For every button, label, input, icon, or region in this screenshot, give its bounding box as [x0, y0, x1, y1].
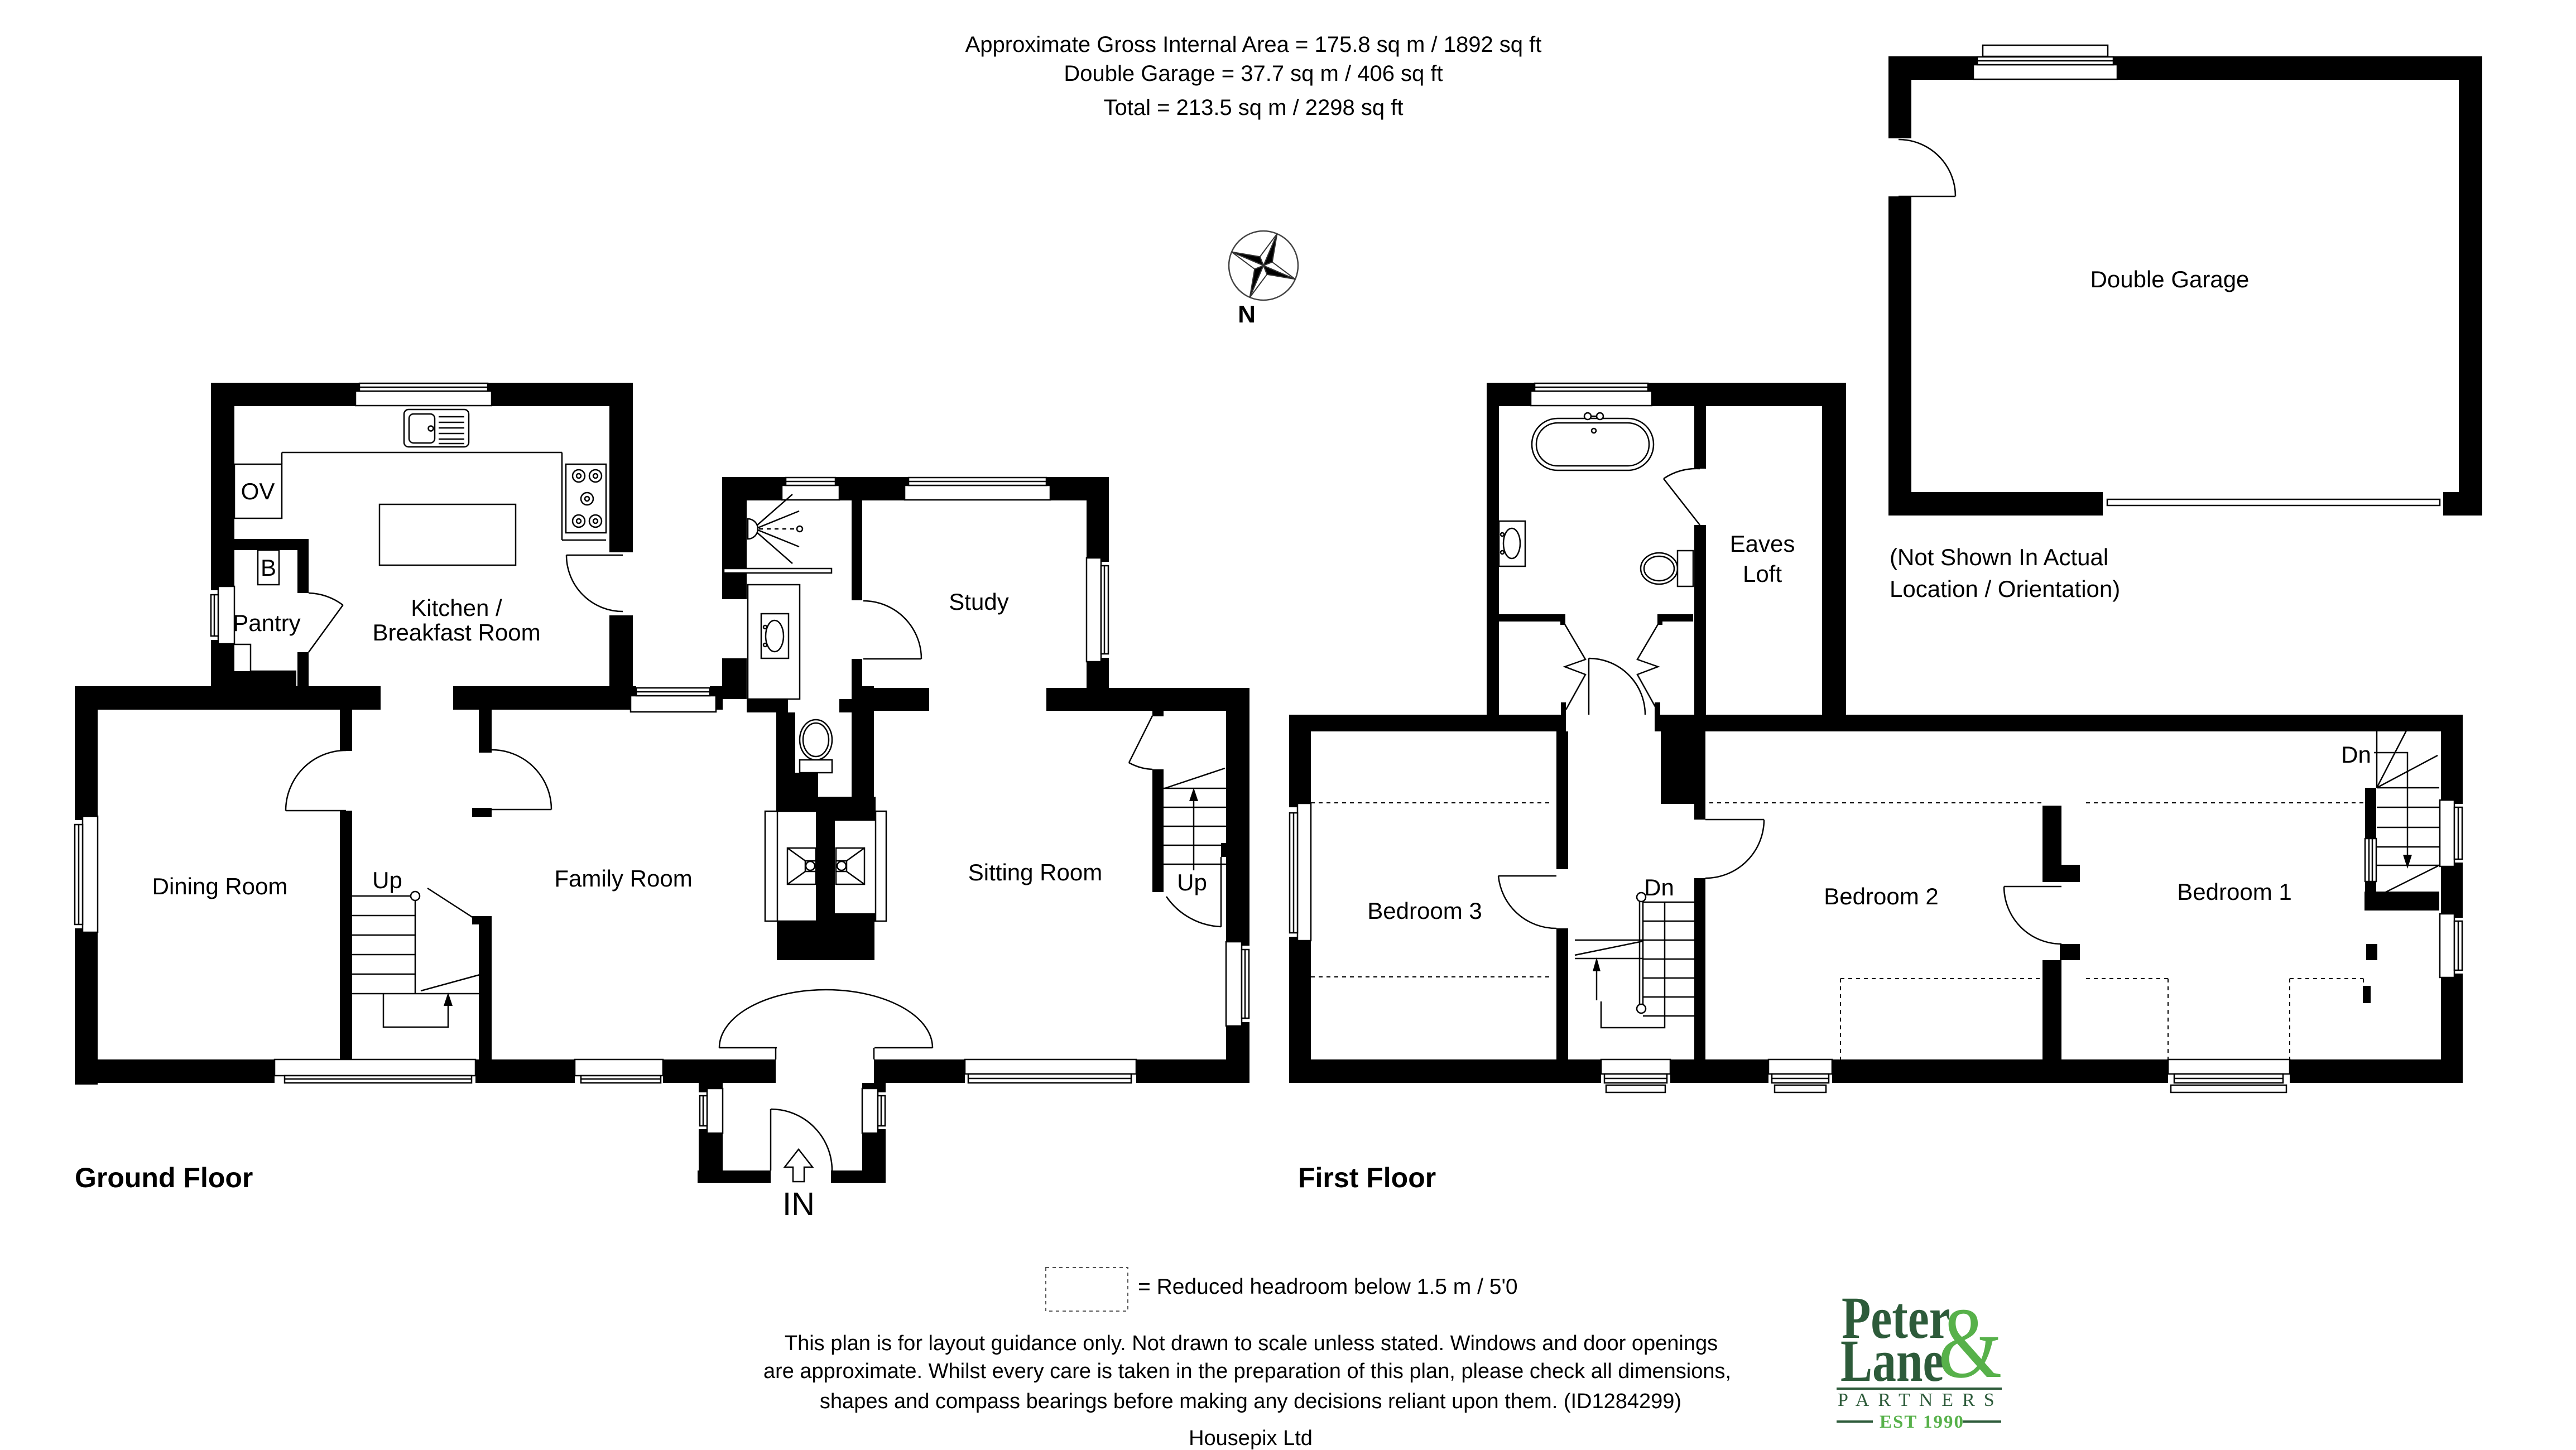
- svg-text:Dn: Dn: [1644, 874, 1674, 900]
- svg-text:This plan is for layout guidan: This plan is for layout guidance only. N…: [785, 1332, 1718, 1355]
- svg-text:Dining Room: Dining Room: [152, 873, 288, 899]
- svg-text:N: N: [1238, 301, 1256, 328]
- svg-text:PARTNERS: PARTNERS: [1838, 1390, 2003, 1410]
- svg-text:EST 1990: EST 1990: [1880, 1412, 1964, 1432]
- svg-text:Pantry: Pantry: [233, 610, 300, 636]
- svg-text:Up: Up: [372, 867, 402, 893]
- svg-text:(Not Shown In Actual: (Not Shown In Actual: [1890, 544, 2108, 570]
- svg-text:Eaves: Eaves: [1730, 531, 1795, 557]
- svg-text:Approximate Gross Internal Are: Approximate Gross Internal Area = 175.8 …: [965, 32, 1542, 57]
- svg-text:= Reduced headroom below 1.5: = Reduced headroom below 1.5 m / 5'0: [1138, 1275, 1518, 1299]
- svg-text:Lane: Lane: [1840, 1328, 1944, 1394]
- svg-text:Up: Up: [1177, 869, 1207, 895]
- svg-text:Loft: Loft: [1743, 561, 1782, 587]
- svg-text:Housepix Ltd: Housepix Ltd: [1189, 1427, 1313, 1450]
- svg-text:Bedroom 1: Bedroom 1: [2177, 879, 2291, 905]
- svg-text:Ground Floor: Ground Floor: [75, 1162, 253, 1193]
- svg-text:Breakfast Room: Breakfast Room: [372, 619, 540, 645]
- svg-text:are approximate. Whilst every: are approximate. Whilst every care is ta…: [763, 1360, 1731, 1383]
- svg-text:Bedroom 3: Bedroom 3: [1367, 898, 1482, 924]
- svg-text:OV: OV: [241, 478, 275, 504]
- svg-text:Study: Study: [949, 589, 1008, 615]
- svg-text:Location / Orientation): Location / Orientation): [1890, 576, 2120, 602]
- svg-text:First Floor: First Floor: [1298, 1162, 1436, 1193]
- svg-text:Family Room: Family Room: [554, 865, 692, 892]
- svg-text:Kitchen /: Kitchen /: [411, 595, 502, 621]
- svg-text:Sitting Room: Sitting Room: [968, 859, 1102, 885]
- svg-text:Double Garage: Double Garage: [2090, 266, 2250, 292]
- svg-text:shapes and compass bearings be: shapes and compass bearings before makin…: [820, 1390, 1681, 1413]
- svg-text:Bedroom 2: Bedroom 2: [1824, 883, 1938, 909]
- svg-text:Dn: Dn: [2341, 741, 2371, 768]
- svg-text:B: B: [261, 555, 276, 581]
- svg-text:IN: IN: [782, 1186, 815, 1222]
- svg-text:Double Garage = 37.7 sq m / 40: Double Garage = 37.7 sq m / 406 sq ft: [1064, 61, 1443, 86]
- svg-text:&: &: [1938, 1287, 2002, 1399]
- svg-text:Total = 213.5 sq m / 2298 sq f: Total = 213.5 sq m / 2298 sq ft: [1104, 95, 1404, 120]
